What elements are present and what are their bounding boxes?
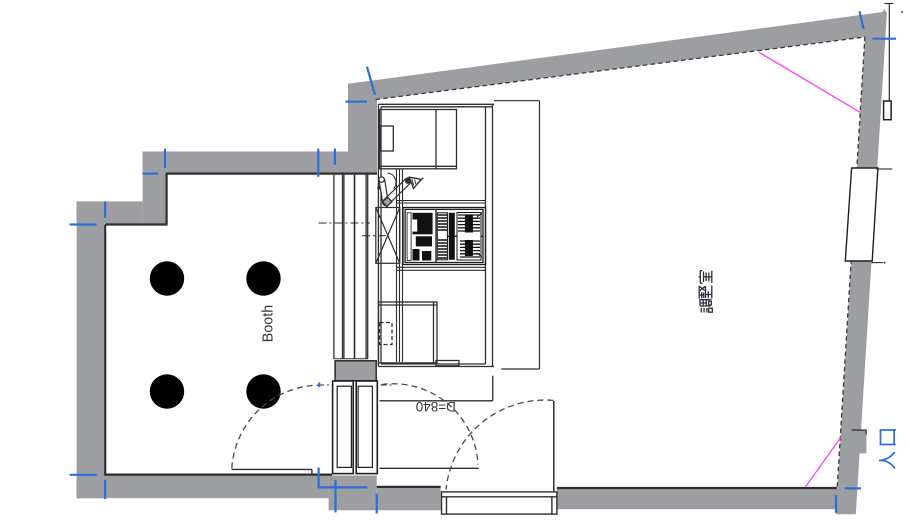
svg-text:D=840: D=840 (416, 399, 456, 414)
svg-text:Booth: Booth (261, 305, 277, 342)
